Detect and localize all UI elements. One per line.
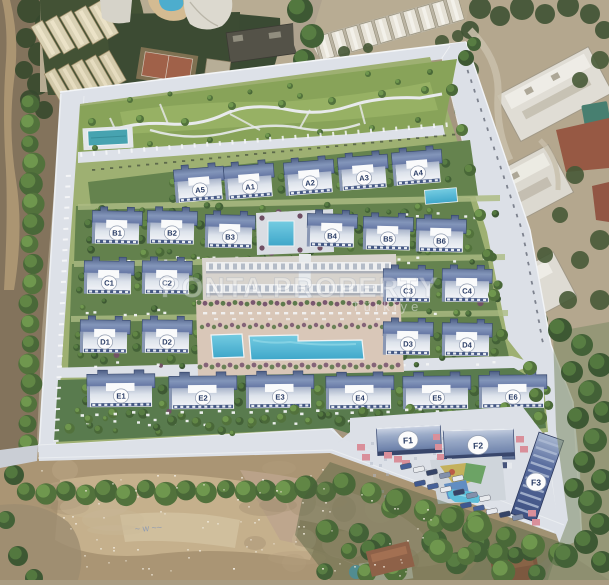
svg-text:Türkiye: Türkiye <box>352 299 423 314</box>
